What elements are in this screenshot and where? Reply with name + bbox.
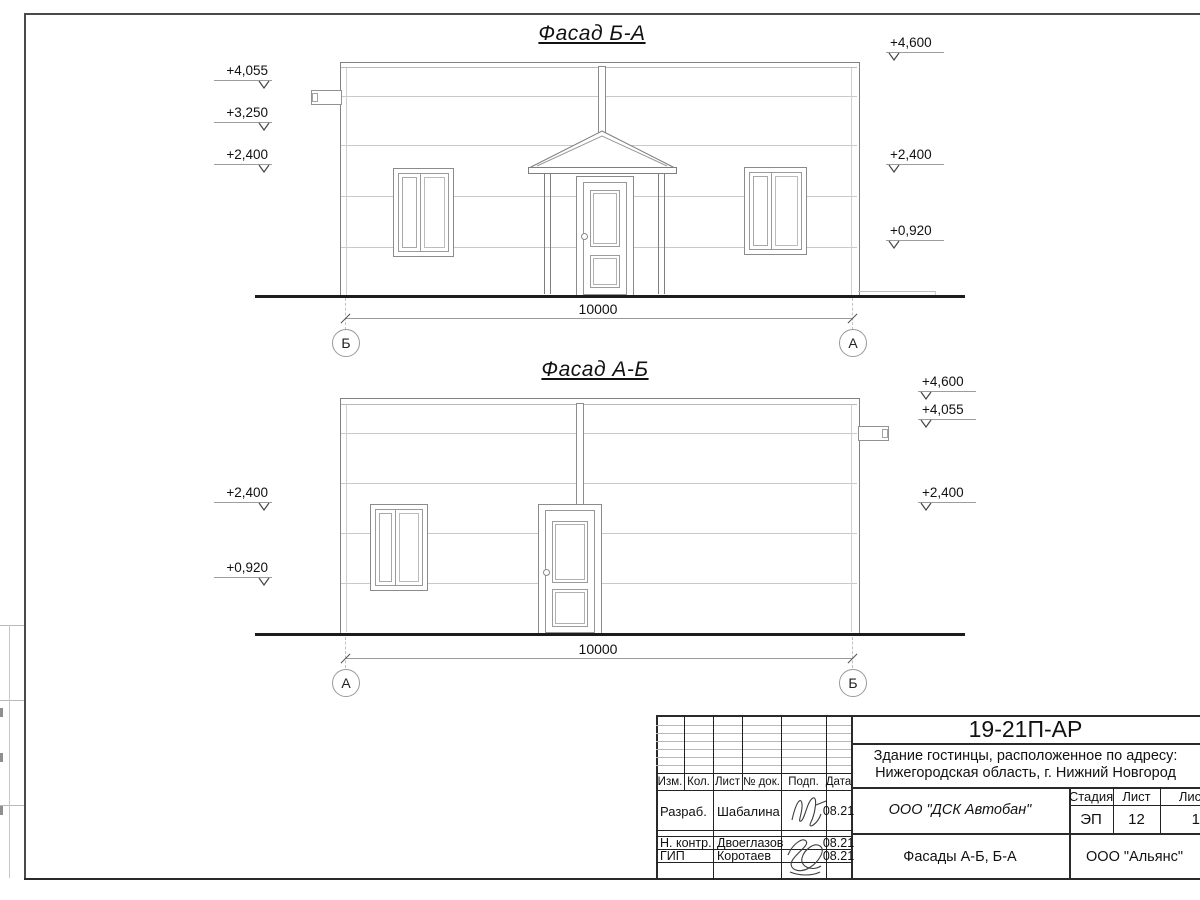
tb-project-name: Здание гостинцы, расположенное по адресу…: [851, 745, 1200, 785]
elevation-arrow-icon: [258, 577, 270, 586]
elevation-mark: +0,920: [214, 561, 272, 586]
side-stamp-mark: [0, 806, 3, 815]
tb-col-kol: Кол.: [684, 773, 713, 790]
dimension-line: [345, 318, 852, 319]
tb-sheet-title: Фасады А-Б, Б-А: [851, 835, 1069, 878]
tb-sheets-label: Листов: [1160, 787, 1200, 805]
elevation-arrow-icon: [258, 502, 270, 511]
ground-line: [255, 633, 965, 636]
elevation-mark: +4,600: [886, 36, 944, 61]
extension-line: [345, 298, 346, 330]
corner-trim: [851, 68, 852, 295]
tb-col-ndok: № док.: [742, 773, 781, 790]
dimension-label: 10000: [548, 301, 648, 317]
window-left: [370, 504, 428, 591]
corner-trim: [851, 405, 852, 632]
window-right: [744, 167, 807, 255]
elevation-mark: +2,400: [918, 486, 976, 511]
tb-role-nkontr: Н. контр.: [656, 836, 717, 849]
tb-stage-label: Стадия: [1069, 787, 1113, 805]
tb-col-izm: Изм.: [656, 773, 684, 790]
rear-door: [538, 504, 602, 634]
tb-stage-value: ЭП: [1069, 805, 1113, 833]
porch-post: [544, 172, 551, 294]
elevation-arrow-icon: [920, 502, 932, 511]
door-leaf: [545, 510, 595, 633]
axis-bubble-a: А: [332, 669, 360, 697]
vent-pipe: [311, 90, 342, 105]
facade-bottom-title: Фасад А-Б: [485, 358, 705, 382]
elevation-mark: +4,055: [918, 403, 976, 428]
elevation-arrow-icon: [888, 164, 900, 173]
side-stamp-line: [0, 700, 24, 701]
elevation-arrow-icon: [920, 419, 932, 428]
extension-line: [852, 298, 853, 330]
porch-post: [658, 172, 665, 294]
elevation-arrow-icon: [920, 391, 932, 400]
door-panel-lower: [590, 255, 620, 288]
roof-stack: [598, 66, 606, 134]
door-panel-lower: [552, 589, 588, 627]
tb-name-dvoeglazov: Двоеглазов: [713, 836, 785, 849]
elevation-mark: +2,400: [214, 148, 272, 173]
elevation-mark: +3,250: [214, 106, 272, 131]
tb-design-company: ООО "ДСК Автобан": [851, 789, 1069, 831]
tb-doc-number: 19-21П-АР: [851, 715, 1200, 743]
axis-bubble-b: Б: [332, 329, 360, 357]
elevation-mark: +4,600: [918, 375, 976, 400]
side-stamp-line: [0, 625, 24, 626]
axis-bubble-a: А: [839, 329, 867, 357]
door-panel-upper: [552, 521, 588, 583]
facade-top-title: Фасад Б-А: [482, 22, 702, 46]
elevation-arrow-icon: [888, 240, 900, 249]
tb-col-podp: Подп.: [781, 773, 826, 790]
siding-line: [341, 483, 857, 484]
elevation-arrow-icon: [888, 52, 900, 61]
drawing-sheet: { "drawing": { "facades": { "top": { "ti…: [0, 0, 1200, 900]
window-left: [393, 168, 454, 257]
door-knob: [581, 233, 588, 240]
tb-col-data: Дата: [826, 773, 851, 790]
ground-line: [255, 295, 965, 298]
signature-gip: [782, 833, 832, 878]
dimension-line: [345, 658, 852, 659]
door-knob: [543, 569, 550, 576]
door-leaf: [583, 182, 627, 295]
dimension-label: 10000: [548, 641, 648, 657]
corner-trim: [346, 405, 347, 632]
corner-trim: [346, 68, 347, 295]
side-stamp-mark: [0, 708, 3, 717]
roof-stack: [576, 403, 584, 506]
entrance-door: [576, 176, 634, 296]
tb-name-korotaev: Коротаев: [713, 849, 785, 862]
parapet-line: [341, 404, 857, 405]
side-stamp-mark: [0, 753, 3, 762]
extension-line: [852, 637, 853, 668]
elevation-mark: +0,920: [886, 224, 944, 249]
axis-bubble-b: Б: [839, 669, 867, 697]
door-panel-upper: [590, 190, 620, 247]
canopy-base: [528, 167, 677, 174]
elevation-mark: +2,400: [214, 486, 272, 511]
tb-col-list: Лист: [713, 773, 742, 790]
signature-razrab: [788, 792, 828, 832]
sheet-frame-top: [24, 13, 1200, 15]
elevation-mark: +2,400: [886, 148, 944, 173]
elevation-arrow-icon: [258, 122, 270, 131]
side-stamp-line: [0, 805, 24, 806]
sheet-frame-bottom: [24, 878, 1200, 880]
elevation-arrow-icon: [258, 80, 270, 89]
tb-name-shabalina: Шабалина: [713, 797, 785, 825]
tb-sheet-label: Лист: [1113, 787, 1160, 805]
sheet-frame-left: [24, 13, 26, 880]
tb-date: 08.21: [826, 797, 851, 825]
tb-client-company: ООО "Альянс": [1069, 835, 1200, 878]
tb-sheets-value: 18: [1160, 805, 1200, 833]
extension-line: [345, 637, 346, 668]
side-stamp-divider: [9, 625, 10, 878]
porch-canopy: [527, 129, 677, 170]
elevation-mark: +4,055: [214, 64, 272, 89]
elevation-arrow-icon: [258, 164, 270, 173]
tb-role-razrab: Разраб.: [656, 797, 717, 825]
siding-line: [341, 433, 857, 434]
tb-sheet-value: 12: [1113, 805, 1160, 833]
vent-pipe: [858, 426, 889, 441]
tb-role-gip: ГИП: [656, 849, 717, 862]
